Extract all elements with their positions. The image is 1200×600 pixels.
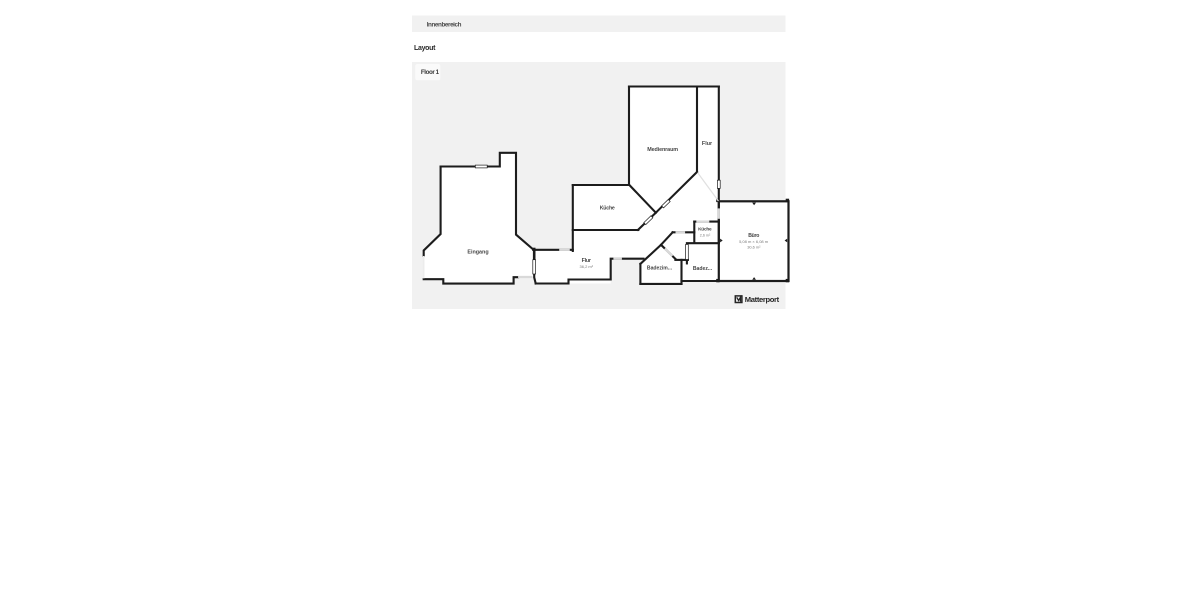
svg-text:Eingang: Eingang xyxy=(467,250,488,256)
svg-text:Layout: Layout xyxy=(414,45,436,52)
svg-text:36,2 m²: 36,2 m² xyxy=(580,264,594,269)
svg-text:Flur: Flur xyxy=(702,141,713,147)
svg-text:Küche: Küche xyxy=(698,226,712,231)
svg-text:Matterport: Matterport xyxy=(745,295,780,304)
svg-text:Badezim...: Badezim... xyxy=(647,266,673,272)
svg-text:Flur: Flur xyxy=(582,258,591,264)
svg-text:Floor 1: Floor 1 xyxy=(421,69,440,76)
svg-text:Innenbereich: Innenbereich xyxy=(427,22,462,29)
svg-text:Medienraum: Medienraum xyxy=(647,147,678,153)
svg-text:Badez...: Badez... xyxy=(693,266,713,272)
svg-text:2,6 m²: 2,6 m² xyxy=(700,233,711,237)
svg-text:30,6 m²: 30,6 m² xyxy=(747,245,761,250)
svg-text:Küche: Küche xyxy=(600,205,615,211)
svg-text:5,08 m × 6,08 m: 5,08 m × 6,08 m xyxy=(739,239,769,244)
